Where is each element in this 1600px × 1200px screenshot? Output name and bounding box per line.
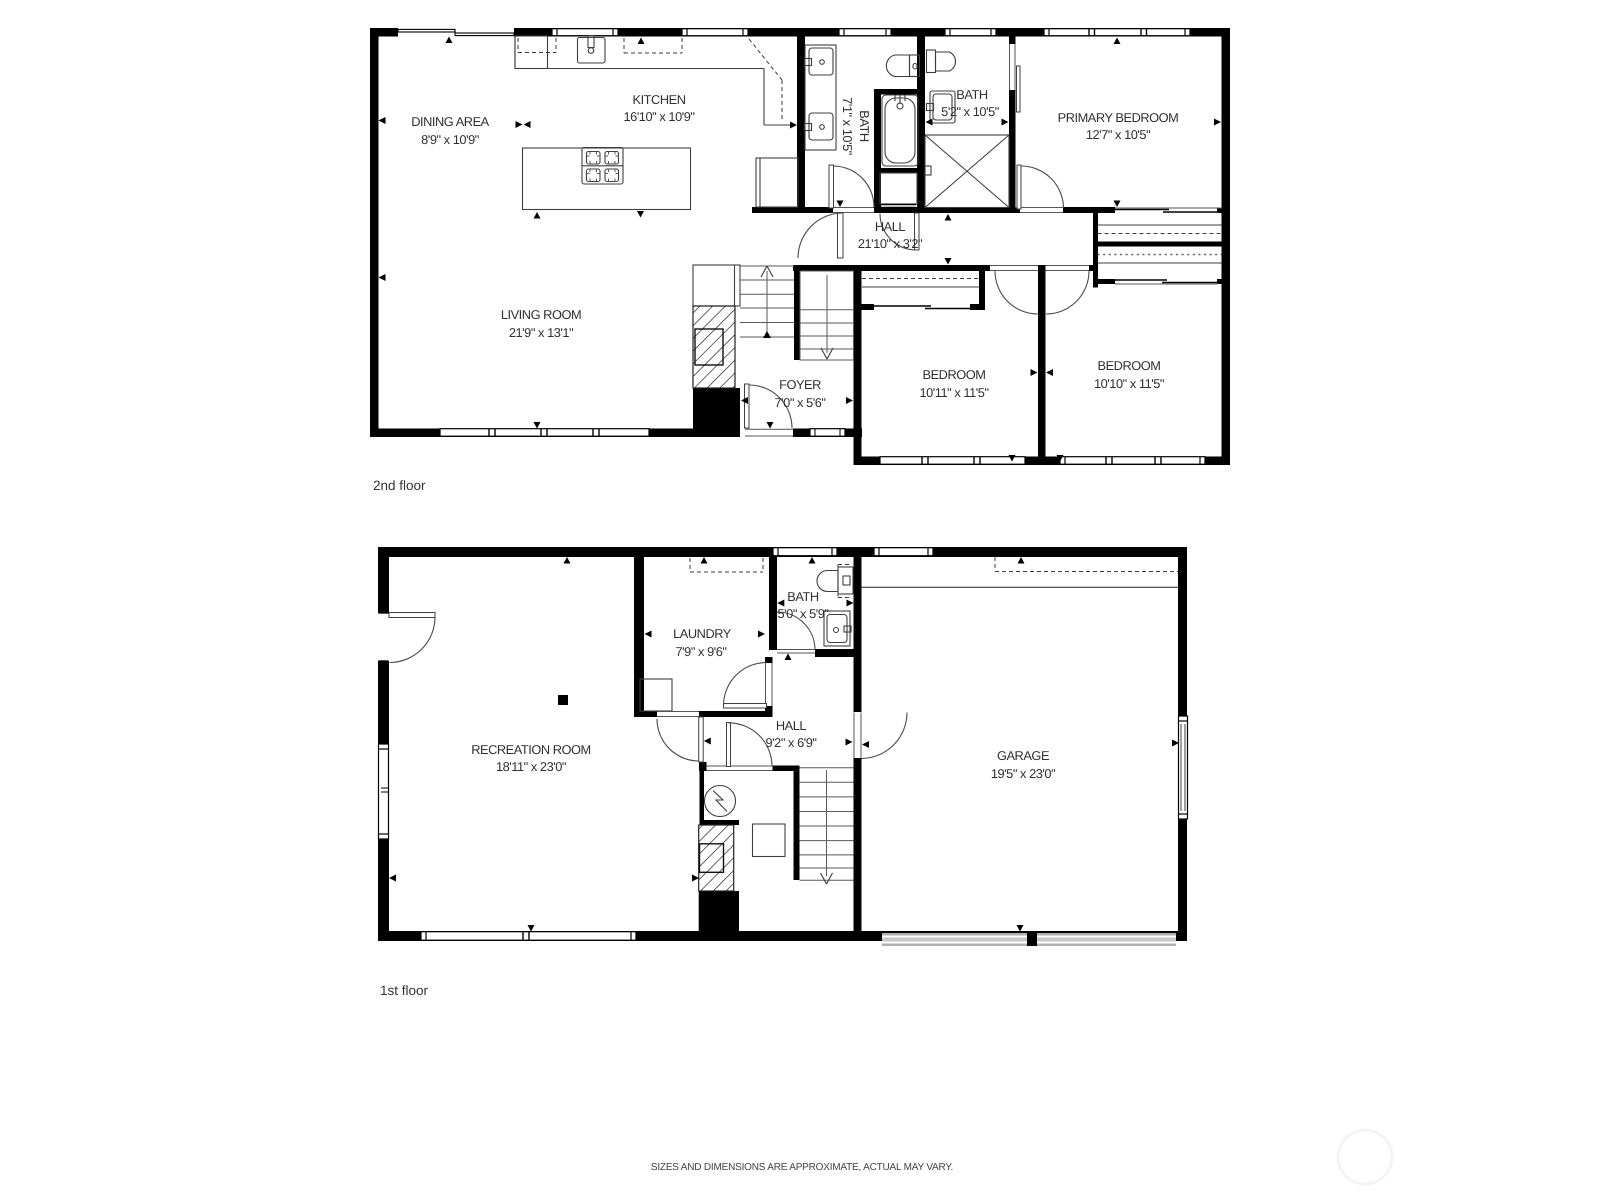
svg-text:7'0" x 5'6": 7'0" x 5'6" [775,395,826,410]
svg-text:19'5" x 23'0": 19'5" x 23'0" [991,766,1055,781]
svg-text:18'11" x 23'0": 18'11" x 23'0" [496,759,566,774]
svg-text:16'10" x 10'9": 16'10" x 10'9" [623,109,694,124]
svg-text:BEDROOM: BEDROOM [1098,358,1161,373]
svg-text:5'2" x 10'5": 5'2" x 10'5" [941,104,999,119]
svg-text:GARAGE: GARAGE [997,748,1049,763]
svg-text:2nd floor: 2nd floor [373,478,426,493]
svg-text:7'1" x 10'5": 7'1" x 10'5" [840,97,855,155]
svg-text:SIZES AND DIMENSIONS ARE APPRO: SIZES AND DIMENSIONS ARE APPROXIMATE, AC… [651,1162,953,1173]
svg-text:1st floor: 1st floor [380,983,429,998]
svg-text:LAUNDRY: LAUNDRY [673,626,732,641]
svg-text:RECREATION ROOM: RECREATION ROOM [471,742,591,757]
svg-text:5'0" x 5'9": 5'0" x 5'9" [778,606,829,621]
svg-text:PRIMARY BEDROOM: PRIMARY BEDROOM [1058,110,1179,125]
svg-text:BATH: BATH [956,87,988,102]
svg-text:BATH: BATH [787,589,819,604]
svg-text:HALL: HALL [875,219,906,234]
svg-text:BATH: BATH [857,110,872,142]
svg-text:21'10" x 3'2": 21'10" x 3'2" [858,236,922,251]
svg-text:7'9" x 9'6": 7'9" x 9'6" [676,644,727,659]
svg-text:21'9" x 13'1": 21'9" x 13'1" [509,325,573,340]
svg-text:9'2" x 6'9": 9'2" x 6'9" [766,735,817,750]
svg-text:12'7" x 10'5": 12'7" x 10'5" [1086,127,1150,142]
svg-text:10'11" x 11'5": 10'11" x 11'5" [919,385,988,400]
svg-text:FOYER: FOYER [779,377,821,392]
svg-text:KITCHEN: KITCHEN [632,92,685,107]
svg-text:8'9" x 10'9": 8'9" x 10'9" [421,132,479,147]
svg-text:BEDROOM: BEDROOM [923,367,986,382]
svg-text:10'10" x 11'5": 10'10" x 11'5" [1094,376,1164,391]
svg-text:HALL: HALL [776,718,807,733]
svg-text:LIVING ROOM: LIVING ROOM [501,307,581,322]
svg-text:DINING AREA: DINING AREA [411,114,489,129]
